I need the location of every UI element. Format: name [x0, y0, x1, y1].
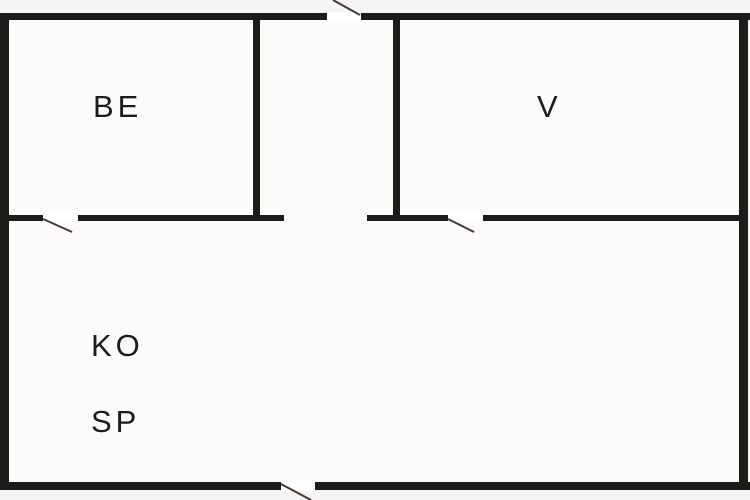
wall-v-divider: [393, 13, 400, 221]
door-opening-be-doorway: [43, 213, 78, 221]
wall-mid-segment-a: [9, 215, 43, 221]
room-label-v: V: [537, 89, 562, 124]
door-opening-v-doorway: [448, 213, 483, 221]
room-label-sp: SP: [91, 404, 140, 439]
wall-be-divider: [253, 13, 260, 221]
wall-mid-segment-d: [483, 215, 739, 221]
wall-mid-segment-c: [367, 215, 448, 221]
room-label-be: BE: [93, 89, 142, 124]
wall-top-left: [0, 13, 327, 20]
wall-left-outer: [0, 13, 9, 490]
floorplan: BEVKOSP: [0, 0, 750, 500]
room-label-ko: KO: [91, 328, 144, 363]
floorplan-page: BEVKOSP: [0, 0, 750, 500]
wall-mid-segment-b: [78, 215, 284, 221]
wall-top-right: [361, 13, 750, 20]
wall-right-outer: [739, 13, 748, 490]
wall-bottom-left: [0, 482, 281, 490]
wall-bottom-right: [315, 482, 750, 490]
